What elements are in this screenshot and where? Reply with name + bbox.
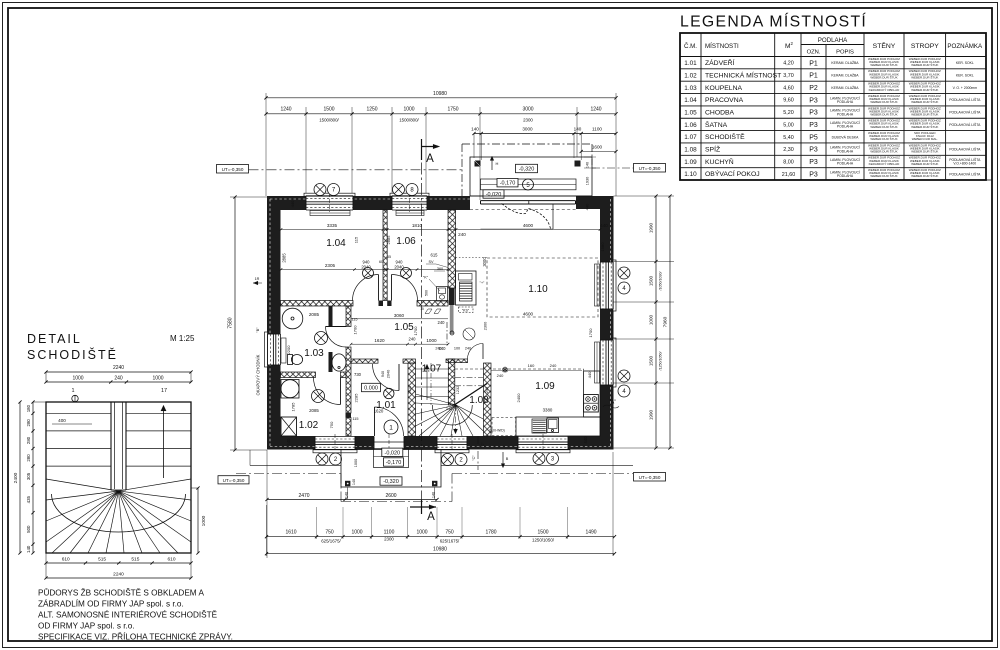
- svg-text:4600: 4600: [523, 223, 534, 228]
- svg-text:1000: 1000: [152, 376, 163, 382]
- svg-text:B: B: [506, 457, 509, 461]
- svg-text:V. O. + 2000mm: V. O. + 2000mm: [953, 86, 978, 90]
- svg-text:5,00: 5,00: [783, 122, 794, 128]
- svg-text:ŠATNA: ŠATNA: [705, 120, 728, 129]
- svg-text:240: 240: [465, 347, 471, 351]
- svg-text:1000: 1000: [426, 338, 437, 343]
- svg-text:POPIS: POPIS: [836, 50, 854, 56]
- svg-text:10980: 10980: [433, 91, 447, 97]
- svg-text:WEBER.DUR ŠTUK: WEBER.DUR ŠTUK: [911, 161, 938, 166]
- svg-text:SPECIFIKACE VIZ. PŘÍLOHA TECHN: SPECIFIKACE VIZ. PŘÍLOHA TECHNICKÉ ZPRÁV…: [38, 632, 233, 642]
- svg-text:2885: 2885: [386, 235, 391, 245]
- svg-text:1.10: 1.10: [528, 284, 548, 295]
- svg-text:P1: P1: [809, 60, 818, 67]
- svg-text:1.09: 1.09: [535, 381, 555, 392]
- svg-text:1785: 1785: [291, 402, 296, 412]
- svg-text:1240: 1240: [280, 106, 291, 112]
- svg-text:280: 280: [26, 419, 31, 427]
- svg-text:STROPY: STROPY: [911, 43, 939, 50]
- svg-text:1.03: 1.03: [684, 85, 697, 92]
- svg-text:OZN.: OZN.: [807, 50, 821, 56]
- svg-text:305: 305: [26, 472, 31, 480]
- svg-text:P5: P5: [809, 134, 818, 141]
- svg-text:240: 240: [485, 387, 489, 393]
- svg-text:1.01: 1.01: [684, 60, 697, 67]
- svg-text:750: 750: [325, 530, 334, 536]
- svg-text:PODLAHA: PODLAHA: [837, 100, 854, 104]
- svg-text:SPÍŽ: SPÍŽ: [705, 145, 720, 154]
- svg-text:ALT. SAMONOSNÉ INTERIÉROVÉ SCH: ALT. SAMONOSNÉ INTERIÉROVÉ SCHODIŠTĚ: [38, 610, 218, 620]
- svg-text:1100: 1100: [592, 127, 602, 132]
- svg-text:PODLAHOVÁ LIŠTA: PODLAHOVÁ LIŠTA: [949, 110, 981, 115]
- svg-text:1.04: 1.04: [326, 238, 346, 249]
- svg-text:60: 60: [379, 260, 383, 264]
- svg-text:1000: 1000: [649, 314, 654, 325]
- svg-text:140: 140: [352, 479, 356, 485]
- svg-text:ZÁBRADLÍM OD FIRMY JAP spol. s: ZÁBRADLÍM OD FIRMY JAP spol. s r.o.: [38, 598, 184, 608]
- svg-text:"+": "+": [480, 281, 485, 285]
- svg-text:"C": "C": [472, 455, 476, 461]
- svg-text:OBÝVACÍ POKOJ: OBÝVACÍ POKOJ: [705, 169, 760, 178]
- svg-text:1232: 1232: [456, 386, 460, 394]
- svg-text:UT=-0,350: UT=-0,350: [222, 167, 244, 172]
- svg-text:1780: 1780: [485, 530, 496, 536]
- svg-text:15: 15: [420, 307, 424, 311]
- svg-text:OD FIRMY JAP spol. s r.o.: OD FIRMY JAP spol. s r.o.: [38, 622, 135, 631]
- svg-text:2300: 2300: [384, 537, 394, 542]
- svg-text:DETAIL: DETAIL: [27, 332, 82, 346]
- svg-text:SV: SV: [428, 260, 434, 264]
- svg-text:2085: 2085: [309, 312, 320, 317]
- svg-text:1: 1: [71, 388, 74, 394]
- svg-text:A: A: [426, 153, 434, 165]
- svg-text:1.07: 1.07: [684, 134, 697, 141]
- svg-text:WEBER.DUR ŠTUK: WEBER.DUR ŠTUK: [870, 136, 897, 141]
- svg-text:WEBER.DUR ŠTUK: WEBER.DUR ŠTUK: [911, 173, 938, 178]
- svg-text:3,70: 3,70: [783, 73, 794, 79]
- svg-text:4,20: 4,20: [783, 61, 794, 67]
- svg-text:1R: 1R: [255, 277, 260, 281]
- svg-text:"C": "C": [481, 442, 485, 448]
- svg-text:2085: 2085: [309, 408, 319, 413]
- svg-text:WEBER.DUR ŠTUK: WEBER.DUR ŠTUK: [870, 74, 897, 79]
- svg-text:1930: 1930: [586, 177, 590, 185]
- svg-text:1.02: 1.02: [299, 420, 319, 431]
- svg-text:1.05: 1.05: [394, 322, 414, 333]
- svg-text:435: 435: [26, 495, 31, 503]
- svg-text:4600: 4600: [523, 312, 534, 317]
- svg-text:240: 240: [446, 407, 452, 411]
- svg-text:STĚNY: STĚNY: [873, 41, 896, 50]
- svg-text:WEBER.DUR ŠTUK: WEBER.DUR ŠTUK: [911, 99, 938, 104]
- svg-text:KERAM. DLAŽBA: KERAM. DLAŽBA: [831, 60, 859, 65]
- svg-text:KUCHYŇ: KUCHYŇ: [705, 157, 734, 166]
- svg-text:DUBOVÁ DESKA: DUBOVÁ DESKA: [832, 135, 859, 139]
- svg-text:SCHODIŠTĚ: SCHODIŠTĚ: [705, 132, 745, 141]
- svg-text:1250/1050/: 1250/1050/: [532, 538, 555, 543]
- svg-text:P2: P2: [809, 85, 818, 92]
- svg-text:240: 240: [458, 232, 466, 237]
- svg-text:1620: 1620: [374, 338, 385, 343]
- svg-text:KOUPELNA: KOUPELNA: [705, 85, 742, 92]
- svg-text:3000: 3000: [482, 257, 487, 267]
- svg-text:160: 160: [528, 363, 535, 368]
- svg-text:1610: 1610: [285, 530, 296, 536]
- svg-text:440: 440: [600, 223, 608, 228]
- svg-text:1.09: 1.09: [684, 159, 697, 166]
- svg-text:5,20: 5,20: [783, 110, 794, 116]
- svg-text:A: A: [427, 511, 435, 523]
- svg-text:P1: P1: [809, 73, 818, 80]
- svg-text:1000: 1000: [354, 459, 358, 467]
- svg-text:3000: 3000: [522, 106, 533, 112]
- svg-text:3060: 3060: [394, 313, 405, 318]
- svg-text:1000: 1000: [201, 515, 207, 526]
- svg-text:2600: 2600: [385, 493, 396, 499]
- svg-text:1500: 1500: [649, 355, 654, 366]
- svg-text:610: 610: [167, 557, 175, 563]
- svg-text:1810: 1810: [412, 223, 423, 228]
- svg-text:P3: P3: [809, 147, 818, 154]
- svg-text:1.05: 1.05: [684, 109, 697, 116]
- svg-text:1600: 1600: [592, 145, 603, 150]
- svg-text:Č.M.: Č.M.: [684, 43, 697, 50]
- svg-text:-0,020: -0,020: [384, 450, 400, 456]
- svg-text:2040: 2040: [361, 265, 371, 270]
- svg-text:1250: 1250: [366, 106, 377, 112]
- svg-text:500: 500: [425, 290, 429, 296]
- svg-text:UT=-0,350: UT=-0,350: [639, 475, 661, 480]
- svg-text:1500: 1500: [649, 275, 654, 286]
- svg-text:1.08: 1.08: [684, 147, 697, 154]
- svg-text:2240: 2240: [113, 365, 124, 371]
- svg-text:1500/800/: 1500/800/: [399, 117, 419, 122]
- svg-text:7580: 7580: [228, 317, 234, 328]
- svg-text:WEBER.DUR ŠTUK: WEBER.DUR ŠTUK: [870, 62, 897, 67]
- svg-text:440: 440: [286, 438, 291, 446]
- svg-text:2400: 2400: [13, 472, 19, 483]
- svg-text:WEBER.DUR ŠTUK: WEBER.DUR ŠTUK: [911, 111, 938, 116]
- svg-text:1700: 1700: [353, 325, 358, 335]
- svg-text:PODLAHOVÁ LIŠTA: PODLAHOVÁ LIŠTA: [949, 147, 981, 152]
- svg-text:PODLAHA: PODLAHA: [837, 174, 854, 178]
- svg-text:(900-W/D): (900-W/D): [489, 429, 505, 433]
- svg-text:1.06: 1.06: [684, 122, 697, 129]
- svg-text:OKAPOVÝ CHODNÍK: OKAPOVÝ CHODNÍK: [256, 354, 261, 395]
- svg-text:PODLAHOVÁ LIŠTA: PODLAHOVÁ LIŠTA: [949, 171, 981, 176]
- svg-text:SCHODIŠTĚ: SCHODIŠTĚ: [27, 347, 118, 362]
- svg-text:10980: 10980: [433, 547, 447, 553]
- svg-text:/1050/1030/: /1050/1030/: [659, 272, 663, 291]
- svg-text:1990: 1990: [649, 222, 654, 233]
- svg-text:2200: 2200: [286, 345, 291, 355]
- svg-text:V.O.+800-1400: V.O.+800-1400: [953, 162, 976, 166]
- svg-text:240: 240: [114, 376, 123, 382]
- svg-text:2300: 2300: [484, 322, 488, 330]
- svg-text:750: 750: [329, 421, 334, 428]
- svg-text:PODLAHA: PODLAHA: [818, 37, 848, 44]
- svg-text:140: 140: [471, 127, 479, 132]
- svg-text:1: 1: [389, 425, 393, 432]
- svg-text:WEBER.DUR MAL.: WEBER.DUR MAL.: [912, 137, 938, 141]
- svg-text:WEBER.DUR ŠTUK: WEBER.DUR ŠTUK: [911, 87, 938, 92]
- svg-text:240: 240: [435, 347, 441, 351]
- svg-text:-0,020: -0,020: [486, 192, 502, 198]
- svg-text:1.02: 1.02: [684, 72, 697, 79]
- svg-text:-0,320: -0,320: [383, 479, 399, 485]
- svg-text:400: 400: [58, 418, 66, 423]
- svg-text:1.03: 1.03: [304, 348, 324, 359]
- svg-text:KER. SOKL: KER. SOKL: [956, 61, 974, 65]
- svg-text:21,60: 21,60: [782, 172, 796, 178]
- svg-text:0.000: 0.000: [364, 386, 378, 392]
- svg-text:"KS": "KS": [462, 309, 470, 313]
- svg-text:KERAM. DLAŽBA: KERAM. DLAŽBA: [831, 73, 859, 78]
- svg-text:9,60: 9,60: [783, 98, 794, 104]
- svg-text:"B": "B": [256, 327, 260, 333]
- svg-text:2040: 2040: [387, 370, 391, 378]
- svg-text:TECHNICKÁ MÍSTNOST: TECHNICKÁ MÍSTNOST: [705, 70, 781, 79]
- svg-text:2240: 2240: [113, 572, 124, 578]
- svg-text:MÍSTNOSTI: MÍSTNOSTI: [705, 43, 739, 50]
- svg-text:WEBER.DUR ŠTUK: WEBER.DUR ŠTUK: [870, 149, 897, 154]
- svg-text:-0,170: -0,170: [500, 181, 516, 187]
- svg-text:1100: 1100: [384, 530, 395, 536]
- svg-text:2400: 2400: [516, 393, 521, 403]
- svg-text:140: 140: [574, 127, 582, 132]
- svg-text:240: 240: [550, 363, 557, 368]
- svg-text:3000: 3000: [522, 127, 533, 132]
- svg-text:P3: P3: [809, 97, 818, 104]
- svg-text:440: 440: [290, 200, 295, 207]
- svg-text:WEBER.DUR ŠTUK: WEBER.DUR ŠTUK: [911, 74, 938, 79]
- svg-text:2470: 2470: [298, 493, 309, 499]
- svg-text:P3: P3: [809, 122, 818, 129]
- svg-text:P3: P3: [809, 171, 818, 178]
- svg-text:2040: 2040: [394, 265, 404, 270]
- svg-text:750: 750: [445, 530, 454, 536]
- svg-text:940: 940: [381, 371, 385, 377]
- svg-text:5,40: 5,40: [783, 135, 794, 141]
- svg-text:PODLAHA: PODLAHA: [837, 125, 854, 129]
- svg-text:280: 280: [26, 436, 31, 444]
- svg-text:/1250/1050/: /1250/1050/: [659, 352, 663, 371]
- svg-text:180: 180: [26, 404, 31, 412]
- svg-text:PODLAHA: PODLAHA: [837, 112, 854, 116]
- svg-text:17: 17: [161, 388, 167, 394]
- svg-text:PODLAHOVÁ LIŠTA: PODLAHOVÁ LIŠTA: [949, 97, 981, 102]
- svg-text:KERAMICKÝ OBKLAD: KERAMICKÝ OBKLAD: [869, 162, 901, 166]
- svg-text:240: 240: [497, 373, 504, 378]
- svg-text:2300: 2300: [523, 117, 533, 122]
- svg-text:115: 115: [354, 236, 359, 243]
- svg-text:2305: 2305: [325, 263, 336, 268]
- svg-text:POZNÁMKA: POZNÁMKA: [947, 43, 983, 50]
- svg-text:WEBER.DUR ŠTUK: WEBER.DUR ŠTUK: [911, 62, 938, 67]
- svg-text:1000: 1000: [403, 106, 414, 112]
- svg-text:115: 115: [352, 417, 358, 421]
- svg-text:610: 610: [62, 557, 70, 563]
- svg-text:1700: 1700: [588, 328, 593, 338]
- svg-text:1990: 1990: [649, 409, 654, 420]
- svg-text:515: 515: [131, 557, 139, 563]
- svg-text:7960: 7960: [663, 316, 669, 327]
- svg-text:WEBER.DUR ŠTUK: WEBER.DUR ŠTUK: [870, 111, 897, 116]
- svg-text:4,60: 4,60: [783, 85, 794, 91]
- svg-text:440: 440: [585, 203, 590, 210]
- svg-text:KERAMICKÝ OBKLAD: KERAMICKÝ OBKLAD: [869, 88, 901, 92]
- svg-text:-0,320: -0,320: [519, 167, 535, 173]
- svg-text:1.08: 1.08: [469, 395, 489, 406]
- svg-text:515: 515: [98, 557, 106, 563]
- svg-text:1.10: 1.10: [684, 171, 697, 178]
- svg-text:1500: 1500: [537, 530, 548, 536]
- svg-text:1.07: 1.07: [422, 364, 442, 375]
- svg-text:PODLAHOVÁ LIŠTA: PODLAHOVÁ LIŠTA: [949, 122, 981, 127]
- svg-text:8,00: 8,00: [783, 159, 794, 165]
- svg-text:1980: 1980: [600, 242, 605, 252]
- svg-text:WEBER.DUR ŠTUK: WEBER.DUR ŠTUK: [911, 124, 938, 129]
- svg-text:1.04: 1.04: [684, 97, 697, 104]
- svg-text:1240: 1240: [590, 106, 601, 112]
- svg-text:KER. SOKL: KER. SOKL: [956, 74, 974, 78]
- svg-text:1620: 1620: [374, 409, 384, 414]
- svg-text:KERAM. DLAŽBA: KERAM. DLAŽBA: [831, 85, 859, 90]
- svg-text:1000: 1000: [72, 376, 83, 382]
- svg-text:ZÁDVEŘÍ: ZÁDVEŘÍ: [705, 58, 735, 67]
- svg-text:500: 500: [26, 525, 31, 533]
- svg-text:UT=-0,350: UT=-0,350: [639, 166, 661, 171]
- svg-text:55: 55: [387, 255, 391, 259]
- svg-text:1500/800/: 1500/800/: [319, 117, 339, 122]
- svg-text:115: 115: [351, 318, 357, 322]
- svg-text:440: 440: [587, 371, 592, 378]
- svg-text:2885: 2885: [282, 253, 287, 263]
- svg-text:WEBER.DUR ŠTUK: WEBER.DUR ŠTUK: [870, 173, 897, 178]
- svg-text:1000: 1000: [416, 530, 427, 536]
- svg-text:CHODBA: CHODBA: [705, 109, 735, 116]
- svg-text:1700: 1700: [413, 326, 418, 336]
- svg-text:PODLAHA: PODLAHA: [837, 149, 854, 153]
- svg-text:730: 730: [354, 372, 362, 377]
- svg-text:UT=-0,350: UT=-0,350: [223, 478, 245, 483]
- svg-text:3380: 3380: [543, 408, 553, 413]
- svg-text:M 1:25: M 1:25: [170, 334, 195, 343]
- svg-text:PŮDORYS ŽB SCHODIŠTĚ S OBKLADE: PŮDORYS ŽB SCHODIŠTĚ S OBKLADEM A: [38, 586, 204, 597]
- svg-text:2,30: 2,30: [783, 147, 794, 153]
- svg-text:"A": "A": [609, 400, 616, 406]
- svg-text:WEBER.DUR ŠTUK: WEBER.DUR ŠTUK: [870, 124, 897, 129]
- svg-text:100: 100: [454, 347, 460, 351]
- svg-text:P3: P3: [809, 110, 818, 117]
- svg-text:360: 360: [437, 267, 443, 271]
- svg-text:240: 240: [438, 320, 446, 325]
- svg-text:2285: 2285: [354, 393, 359, 403]
- svg-text:1490: 1490: [585, 530, 596, 536]
- svg-text:P3: P3: [809, 159, 818, 166]
- svg-text:-0,170: -0,170: [386, 460, 402, 466]
- svg-text:WEBER.DUR ŠTUK: WEBER.DUR ŠTUK: [911, 149, 938, 154]
- svg-text:280: 280: [26, 454, 31, 462]
- svg-text:615: 615: [431, 253, 439, 258]
- svg-text:3335: 3335: [327, 223, 338, 228]
- svg-text:H: H: [496, 161, 499, 166]
- svg-text:625/1675/: 625/1675/: [440, 539, 460, 544]
- svg-text:140: 140: [26, 545, 31, 553]
- svg-text:1000: 1000: [351, 530, 362, 536]
- svg-text:PODLAHA: PODLAHA: [837, 162, 854, 166]
- svg-text:LEGENDA MÍSTNOSTÍ: LEGENDA MÍSTNOSTÍ: [680, 12, 867, 31]
- svg-text:1.06: 1.06: [396, 236, 416, 247]
- svg-text:1500: 1500: [323, 106, 334, 112]
- svg-text:WEBER.DUR ŠTUK: WEBER.DUR ŠTUK: [870, 99, 897, 104]
- svg-text:140: 140: [586, 162, 590, 168]
- svg-text:625/1675/: 625/1675/: [321, 539, 341, 544]
- svg-text:240: 240: [409, 337, 417, 342]
- svg-text:1750: 1750: [447, 106, 458, 112]
- svg-text:2410: 2410: [408, 386, 412, 394]
- svg-text:"K": "K": [423, 276, 429, 280]
- svg-text:440: 440: [583, 436, 588, 444]
- svg-text:PRACOVNA: PRACOVNA: [705, 97, 744, 104]
